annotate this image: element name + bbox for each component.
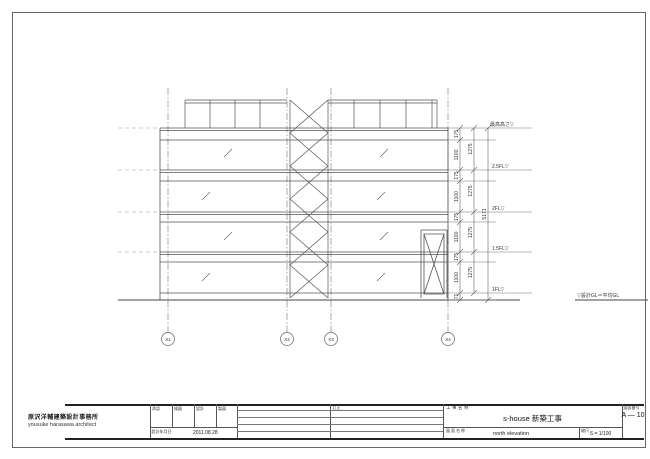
approval-header: 検図 (174, 406, 182, 412)
dim-text: 1275 (468, 143, 474, 154)
dim-text: 1100 (454, 272, 460, 283)
drawing-number: A — 10 (618, 412, 648, 419)
stair-bay-lattice (290, 100, 328, 298)
architect-name-en: yousuke harasawa architect (28, 422, 96, 428)
drawing-sheet: 175 1100 175 1100 175 1100 175 1100 71 1… (0, 0, 650, 459)
drawing-name: north elevation (443, 431, 579, 437)
gl-label: ▽設計GL＝平均GL (577, 292, 619, 299)
revision-row-rule (237, 431, 443, 432)
dims-inner: 175 1100 175 1100 175 1100 175 1100 71 (454, 130, 460, 300)
glazing-marks (202, 149, 388, 281)
level-label: 最高高さ▽ (490, 121, 514, 128)
dim-text: 175 (454, 213, 460, 222)
approval-header: 承認 (152, 406, 160, 412)
grid-bubble-label: X4 (445, 337, 451, 342)
dim-text: 175 (454, 130, 460, 139)
dim-text: 1100 (454, 191, 460, 202)
level-label: 2.5FL▽ (492, 164, 509, 170)
revision-row-rule (237, 417, 443, 418)
dim-text: 1275 (468, 267, 474, 278)
project-name: s-house 新築工事 (443, 413, 622, 424)
tb-rule (443, 427, 622, 428)
level-label: 1FL▽ (492, 287, 505, 293)
tb-rule (150, 427, 237, 428)
dim-total-text: 5171 (482, 208, 488, 219)
revision-row-rule (237, 424, 443, 425)
roof-railing (185, 100, 437, 128)
elevation-drawing: 175 1100 175 1100 175 1100 175 1100 71 1… (0, 0, 650, 459)
tb-divider (194, 404, 195, 427)
dim-text: 1275 (468, 185, 474, 196)
dim-text: 1100 (454, 231, 460, 242)
dim-text: 1100 (454, 149, 460, 160)
level-label: 1.5FL▽ (492, 246, 509, 252)
date-label: 設計年月日 (152, 429, 172, 435)
dim-text: 175 (454, 253, 460, 262)
entrance-door (421, 230, 447, 298)
project-label: 工事名称 (446, 405, 470, 411)
dim-text: 71 (454, 294, 460, 300)
titleblock-bottom-rule (65, 438, 644, 440)
revision-label: 訂正 (333, 405, 341, 411)
drawing-number-label: 図面番号 (624, 405, 640, 411)
right-witness-lines (448, 128, 532, 300)
level-labels: 最高高さ▽ 2.5FL▽ 2FL▽ 1.5FL▽ 1FL▽ (490, 121, 514, 293)
grid-bubbles: X1 X2 X3 X4 (162, 333, 455, 346)
dims-story: 1275 1275 1275 1275 (468, 143, 474, 278)
grid-bubble-label: X1 (165, 337, 171, 342)
tb-divider (172, 404, 173, 427)
approval-header: 設計 (196, 406, 204, 412)
date-value: 2011.08.28 (193, 430, 218, 436)
grid-bubble-label: X2 (284, 337, 290, 342)
left-level-stubs (118, 128, 160, 300)
tb-divider (216, 404, 217, 427)
level-label: 2FL▽ (492, 206, 505, 212)
dim-text: 1275 (468, 227, 474, 238)
dim-text: 175 (454, 171, 460, 180)
grid-bubble-label: X3 (328, 337, 334, 342)
approval-header: 製図 (218, 406, 226, 412)
scale-value: S = 1/100 (579, 431, 622, 437)
architect-name-jp: 原沢洋輔建築設計事務所 (28, 412, 98, 421)
